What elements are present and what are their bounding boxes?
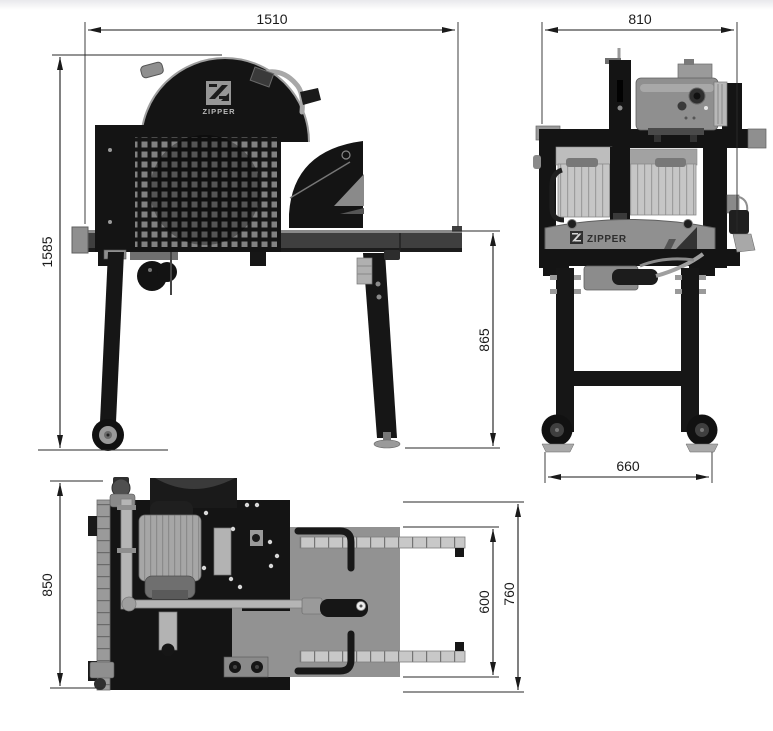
zipper-logo-guard [206,81,231,105]
dim-text-side-total-height: 1585 [39,236,55,267]
dim-text-top-table-depth: 760 [501,582,517,606]
dim-text-top-depth: 850 [39,573,55,597]
push-handle [302,598,368,617]
side-left-leg [100,250,126,422]
log-cradle [552,147,697,231]
brand-bracket-plate: ZIPPER [545,220,715,253]
leg-crossbar [556,371,699,386]
front-main-beam [539,129,749,148]
table-left-bracket [72,227,88,253]
technical-drawing-page: ZIPPER [0,0,773,731]
dimension-side-table-height: 865 [452,231,500,446]
side-wheel [92,419,124,451]
adjustable-foot [374,440,400,448]
front-legs [550,268,706,432]
side-right-leg [357,250,400,448]
outfeed-guard [289,141,364,228]
front-view: ZIPPER [533,11,766,483]
mesh-housing [95,125,281,266]
dim-text-top-rail-span: 600 [476,590,492,614]
dimension-top-table-depth: 760 [403,502,524,692]
side-view: ZIPPER [38,11,500,451]
top-view: 850 600 760 [39,477,524,692]
zipper-logo-plate [570,231,583,244]
power-connector [727,195,755,252]
drive-motor-under-table [130,252,178,295]
dim-text-front-width: 810 [628,11,652,27]
side-view-machine: ZIPPER [38,58,500,451]
front-wheels [542,415,719,453]
dim-text-side-width: 1510 [256,11,287,27]
front-view-machine: ZIPPER [533,48,766,452]
dim-text-side-table-height: 865 [476,328,492,352]
top-view-machine [88,477,465,690]
dim-text-front-track: 660 [616,458,640,474]
left-edge-rail [97,500,110,690]
guard-brand-text: ZIPPER [202,107,235,116]
motor-top-view [139,501,201,599]
electric-motor [636,59,727,142]
dimension-top-depth: 850 [39,481,103,688]
front-bottom-rail [540,249,740,266]
log-saw-dimension-drawing: ZIPPER [0,0,773,731]
dimension-front-track: 660 [545,452,712,483]
plate-brand-text: ZIPPER [587,234,627,245]
